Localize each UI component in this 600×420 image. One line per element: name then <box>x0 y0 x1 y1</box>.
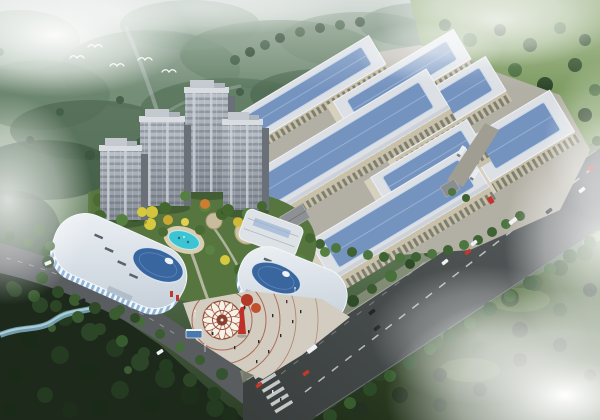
rendering-canvas: Aerial rendering of a mixed-use industri… <box>0 0 600 420</box>
plaza-mandala <box>203 301 242 340</box>
bus-shelter <box>186 329 202 338</box>
aerial-rendering: Aerial rendering of a mixed-use industri… <box>0 0 600 420</box>
